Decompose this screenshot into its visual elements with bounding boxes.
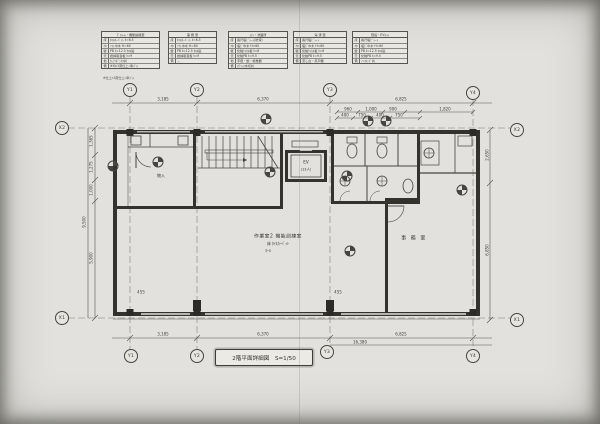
walls xyxy=(113,130,480,316)
detail-marker-icon xyxy=(108,161,119,172)
dimension-label: 9,500 xyxy=(82,216,87,227)
finish-spec: 流し台・吊戸棚 xyxy=(301,59,346,63)
detail-marker-icon xyxy=(265,167,276,178)
dimension-label: 455 xyxy=(334,290,342,295)
finish-item: 壁 xyxy=(229,49,236,53)
dimension-label: 3,185 xyxy=(157,332,168,337)
finish-spec: 化粧ｹｲｶﾙ板 t=6 xyxy=(301,49,346,53)
grid-bubble-y2: Y2 xyxy=(190,349,204,363)
detail-marker-icon xyxy=(261,114,272,125)
dimension-label: 2,650 xyxy=(485,149,490,160)
finish-item: 巾 xyxy=(169,44,176,48)
finish-item: 天 xyxy=(169,54,176,58)
dimension-label: 455 xyxy=(137,290,145,295)
finish-item: 備 xyxy=(169,59,176,63)
finish-spec: 岩綿吸音板 t=9 xyxy=(109,54,159,58)
finish-table-row: 備ﾉﾝｽﾘｯﾌﾟ共 xyxy=(353,59,407,63)
dimension-label: 900 xyxy=(389,107,397,112)
blueprint-sheet: ﾃﾞｲﾙｰﾑ・機能訓練室床ﾀｲﾙｶｰﾍﾟｯﾄ t=6.5巾ｿﾌﾄ巾木 H=60壁… xyxy=(0,0,600,424)
dimension-label: 5,900 xyxy=(89,252,94,263)
finish-item: 床 xyxy=(229,38,236,42)
finish-spec: 化粧PB t=9.5 xyxy=(360,54,407,58)
dimension-lines xyxy=(88,100,493,345)
columns xyxy=(127,129,477,316)
dimension-label: 1,365 xyxy=(89,135,94,146)
grid-bubble-x1: X1 xyxy=(55,311,69,325)
finish-table-1: ﾃﾞｲﾙｰﾑ・機能訓練室床ﾀｲﾙｶｰﾍﾟｯﾄ t=6.5巾ｿﾌﾄ巾木 H=60壁… xyxy=(101,31,160,69)
dimension-label: 6,370 xyxy=(257,332,268,337)
finish-item: 床 xyxy=(102,38,109,42)
finish-table-4: 湯 沸 室床長尺塩ﾋﾞｼｰﾄ巾塩ﾋﾞ巾木 H=60壁化粧ｹｲｶﾙ板 t=6天化粧… xyxy=(293,31,347,64)
finish-spec: 化粧PB t=9.5 xyxy=(301,54,346,58)
elevator-capacity-label: (13人) xyxy=(301,167,311,172)
dimension-label: 1,820 xyxy=(439,107,450,112)
dimension-label: 16,380 xyxy=(353,340,367,345)
paper-fold-line xyxy=(299,0,300,424)
finish-spec: PB t=12.5 ｸﾛｽ貼 xyxy=(176,49,216,53)
detail-marker-icon xyxy=(153,157,164,168)
toilet-block xyxy=(334,134,417,201)
grid-bubble-y1: Y1 xyxy=(124,349,138,363)
finish-item: 巾 xyxy=(102,44,109,48)
room-label-main-1: 作業室2 機能訓練室 xyxy=(254,233,302,240)
storage-room xyxy=(128,134,193,206)
finish-table-row: 備※印ﾊ1階仕上ﾆ準ｽﾞﾙ xyxy=(102,64,159,68)
finish-spec: ｿﾌﾄ巾木 H=60 xyxy=(176,44,216,48)
room-label-main-3: ﾎｰﾙ xyxy=(265,248,271,254)
grid-bubble-x2: X2 xyxy=(510,123,524,137)
dimension-label: 1,275 xyxy=(89,161,94,172)
detail-marker-icon xyxy=(457,185,468,196)
finish-item: 備 xyxy=(229,64,236,68)
finish-spec: 岩綿吸音板 t=9 xyxy=(176,54,216,58)
dimension-label: 6,825 xyxy=(395,332,406,337)
detail-marker-icon xyxy=(381,116,392,127)
finish-spec: PB t=12.5 ｸﾛｽ貼 xyxy=(109,49,159,53)
finish-item: 床 xyxy=(169,38,176,42)
dimension-label: 6,825 xyxy=(395,97,406,102)
dimension-label: 1,000 xyxy=(365,107,376,112)
dimension-label: 960 xyxy=(344,107,352,112)
finish-item: 壁 xyxy=(353,49,360,53)
dimension-label: 6,370 xyxy=(257,97,268,102)
grid-bubble-y3: Y3 xyxy=(323,83,337,97)
finish-spec: ｿﾌﾄ巾木 H=60 xyxy=(109,44,159,48)
finish-spec: ﾀｲﾙｶｰﾍﾟｯﾄ t=6.5 xyxy=(176,38,216,42)
finish-spec: 化粧ｹｲｶﾙ板 t=6 xyxy=(236,49,287,53)
finish-item: 壁 xyxy=(169,49,176,53)
finish-table-2: 事 務 室床ﾀｲﾙｶｰﾍﾟｯﾄ t=6.5巾ｿﾌﾄ巾木 H=60壁PB t=12… xyxy=(168,31,217,64)
finish-table-row: 備ｽﾃﾝﾚｽ水切共 xyxy=(229,64,287,68)
finish-item: 巾 xyxy=(229,44,236,48)
finish-item: 他 xyxy=(102,59,109,63)
kitchenette xyxy=(420,134,476,173)
detail-marker-icon xyxy=(363,116,374,127)
finish-spec: 塩ﾋﾞ巾木 H=60 xyxy=(360,44,407,48)
drawing-title: 2階平面詳細図 S=1/50 xyxy=(232,354,296,362)
finish-spec: 化粧PB t=9.5 xyxy=(236,54,287,58)
grid-bubble-y3: Y3 xyxy=(320,345,334,359)
grid-bubble-y2: Y2 xyxy=(190,83,204,97)
finish-table-5: 階段・EVﾎｰﾙ床長尺塩ﾋﾞｼｰﾄ巾塩ﾋﾞ巾木 H=60壁PB t=12.5 ｸ… xyxy=(352,31,408,64)
detail-marker-icon xyxy=(342,171,353,182)
grid-bubble-y4: Y4 xyxy=(466,86,480,100)
finish-spec: ﾉﾝｽﾘｯﾌﾟ共 xyxy=(360,59,407,63)
grid-bubble-x2: X2 xyxy=(55,121,69,135)
finish-table-row: 備流し台・吊戸棚 xyxy=(294,59,346,63)
detail-marker-icon xyxy=(345,246,356,257)
finish-spec: 塩ﾋﾞ巾木 H=60 xyxy=(236,44,287,48)
room-label-closet: 物入 xyxy=(157,173,165,179)
room-label-office: 事 務 室 xyxy=(401,235,427,242)
dimension-label: 6,850 xyxy=(485,244,490,255)
room-label-main-2: 床 ﾀｲﾙｶｰﾍﾟｯﾄ xyxy=(267,241,289,247)
dimension-label: 400 xyxy=(341,113,349,118)
finish-item: 巾 xyxy=(353,44,360,48)
finish-spec: ｽﾃﾝﾚｽ水切共 xyxy=(236,64,287,68)
finish-item: 床 xyxy=(353,38,360,42)
finish-spec: 手摺・鏡・紙巻器 xyxy=(236,59,287,63)
dimension-label: 3,185 xyxy=(157,97,168,102)
elevator-label: EV xyxy=(303,160,309,165)
finish-item: 壁 xyxy=(102,49,109,53)
finish-spec: 塩ﾋﾞ巾木 H=60 xyxy=(301,44,346,48)
table-caption: ※仕上ﾊ1階仕上ﾆ準ｽﾞﾙ xyxy=(103,75,134,80)
grid-bubble-y1: Y1 xyxy=(123,83,137,97)
finish-item: 備 xyxy=(102,64,109,68)
finish-spec: 長尺塩ﾋﾞｼｰﾄ(防滑) xyxy=(236,38,287,42)
dimension-label: 750 xyxy=(395,113,403,118)
finish-spec: － xyxy=(176,59,216,63)
office-door xyxy=(388,206,404,222)
dimension-label: 1,000 xyxy=(89,184,94,195)
staircase xyxy=(198,136,281,168)
grid-lines xyxy=(68,96,510,350)
finish-spec: 長尺塩ﾋﾞｼｰﾄ xyxy=(301,38,346,42)
finish-table-row: 備－ xyxy=(169,59,216,63)
finish-item: 備 xyxy=(353,59,360,63)
finish-table-3: ﾄｲﾚ・洗面所床長尺塩ﾋﾞｼｰﾄ(防滑)巾塩ﾋﾞ巾木 H=60壁化粧ｹｲｶﾙ板 … xyxy=(228,31,288,69)
finish-item: 他 xyxy=(229,59,236,63)
finish-spec: ｶｰﾃﾝﾎﾞｯｸｽ共 xyxy=(109,59,159,63)
finish-spec: 長尺塩ﾋﾞｼｰﾄ xyxy=(360,38,407,42)
grid-bubble-x1: X1 xyxy=(510,313,524,327)
finish-item: 天 xyxy=(229,54,236,58)
finish-item: 天 xyxy=(102,54,109,58)
finish-item: 天 xyxy=(353,54,360,58)
windows xyxy=(113,132,480,319)
finish-spec: ※印ﾊ1階仕上ﾆ準ｽﾞﾙ xyxy=(109,64,159,68)
finish-spec: ﾀｲﾙｶｰﾍﾟｯﾄ t=6.5 xyxy=(109,38,159,42)
grid-bubble-y4: Y4 xyxy=(466,349,480,363)
finish-spec: PB t=12.5 ｸﾛｽ貼 xyxy=(360,49,407,53)
